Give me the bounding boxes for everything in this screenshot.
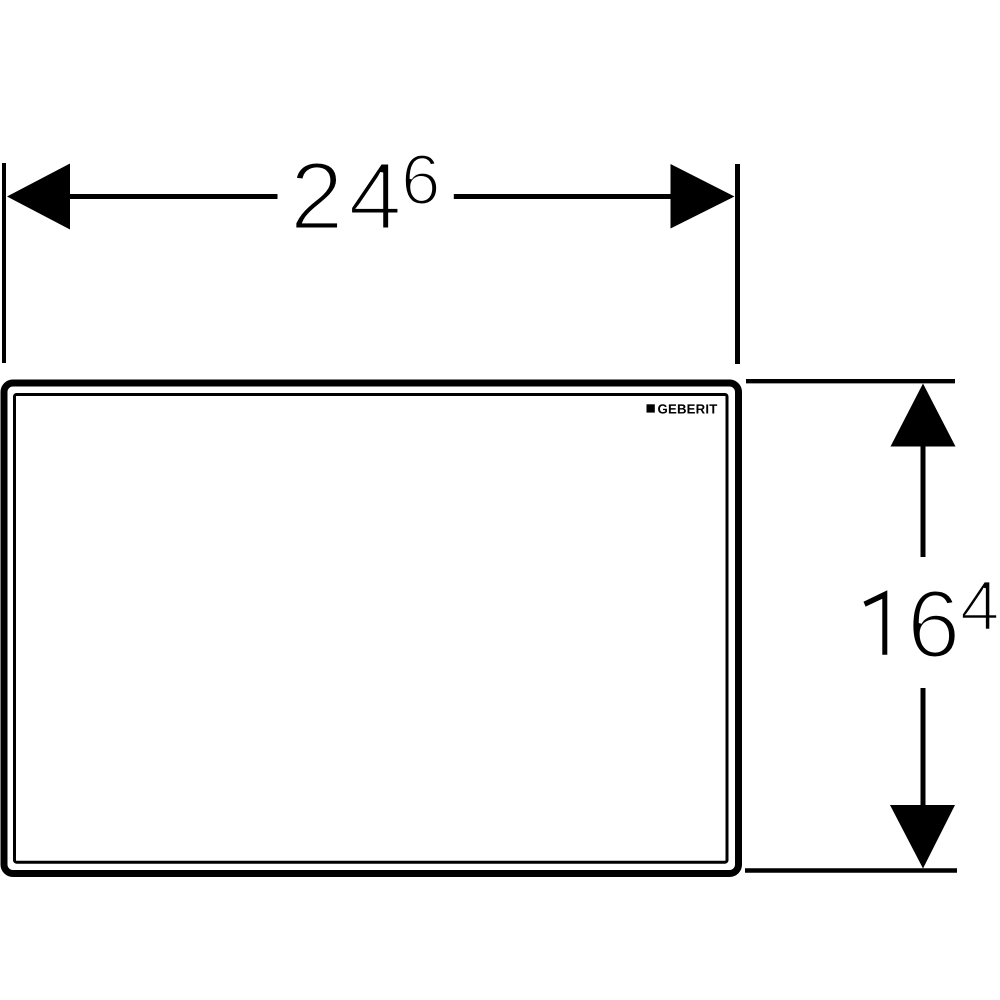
svg-text:24: 24 bbox=[290, 143, 407, 250]
svg-text:6: 6 bbox=[907, 571, 960, 678]
svg-text:4: 4 bbox=[960, 567, 1000, 646]
svg-text:GEBERIT: GEBERIT bbox=[658, 401, 718, 416]
svg-text:6: 6 bbox=[401, 141, 441, 220]
